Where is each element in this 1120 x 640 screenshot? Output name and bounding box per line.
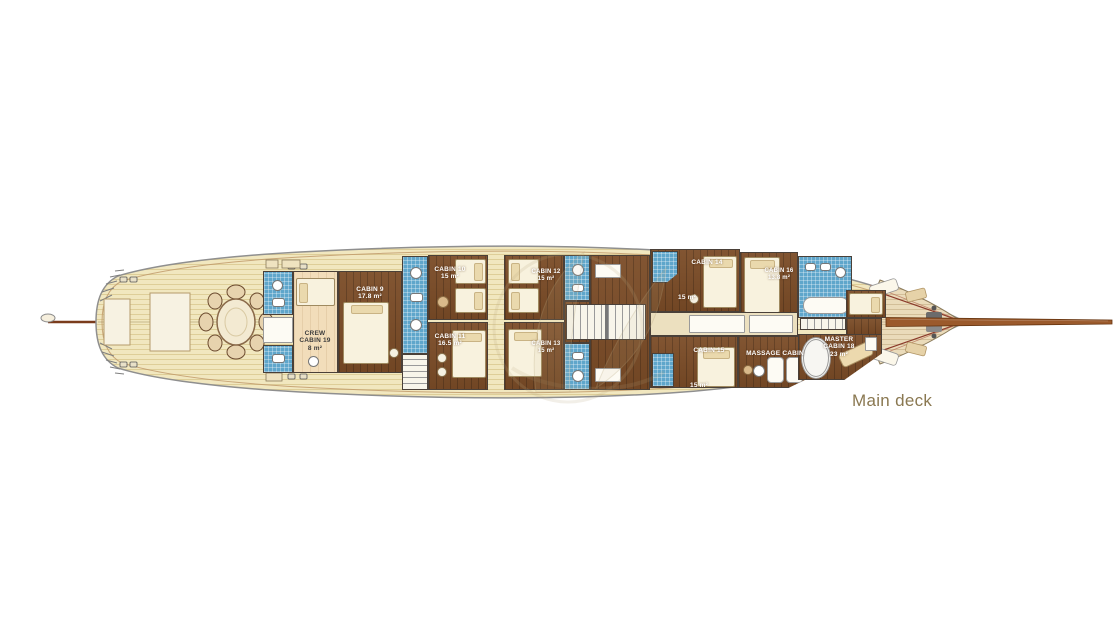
toilet bbox=[572, 370, 584, 382]
room-area: 17.8 m² bbox=[342, 293, 398, 301]
room-area: 15 m² bbox=[670, 294, 704, 302]
sink bbox=[410, 293, 423, 302]
corridor-cabinet bbox=[749, 315, 793, 333]
vanity-counter bbox=[803, 297, 849, 314]
room-label-cabin-12: CABIN 12 15 m² bbox=[528, 262, 564, 290]
room-label-cabin-13: CABIN 13 15 m² bbox=[528, 334, 564, 362]
corridor bbox=[650, 312, 798, 336]
double-bed bbox=[343, 302, 389, 364]
room-area: 8 m² bbox=[289, 345, 341, 353]
yacht-deck-plan: CREW CABIN 19 8 m² CABIN 9 17.8 m² CABIN… bbox=[0, 0, 1120, 640]
room-name: CABIN 13 bbox=[532, 341, 561, 347]
room-area: 23 m² bbox=[814, 351, 864, 359]
corridor-cabinet bbox=[689, 315, 745, 333]
room-area-cabin-14: 15 m² bbox=[670, 286, 704, 309]
side-table bbox=[743, 365, 753, 375]
cabin-16-bathroom bbox=[798, 256, 852, 318]
twin-bed bbox=[508, 288, 539, 313]
room-area: 15 m² bbox=[528, 348, 564, 355]
master-cabin-bed-area bbox=[846, 290, 886, 318]
sink bbox=[272, 298, 285, 307]
sink bbox=[820, 263, 831, 271]
room-label-cabin-10: CABIN 10 15 m² bbox=[428, 258, 472, 289]
crew-bathroom bbox=[263, 271, 293, 315]
room-label-cabin-9: CABIN 9 17.8 m² bbox=[342, 278, 398, 309]
bathroom-mid-bottom bbox=[564, 343, 590, 390]
room-label-cabin-11: CABIN 11 16.5 m² bbox=[428, 325, 472, 356]
sink bbox=[805, 263, 816, 271]
stairs-aft bbox=[402, 354, 428, 390]
main-staircase bbox=[566, 304, 646, 340]
room-name: MASSAGE CABIN bbox=[746, 350, 804, 357]
deck-skylight bbox=[150, 293, 190, 351]
stool bbox=[389, 348, 399, 358]
room-name: CABIN 16 bbox=[765, 268, 794, 274]
room-area: 15 m² bbox=[528, 276, 564, 283]
room-area: 15 m² bbox=[682, 382, 716, 390]
deck-title: Main deck bbox=[852, 391, 932, 411]
stern-flag-pole bbox=[41, 314, 98, 322]
toilet bbox=[835, 267, 846, 278]
cabin-14-bathroom bbox=[652, 251, 678, 283]
room-label-cabin-14: CABIN 14 bbox=[676, 251, 738, 266]
hull-base-drawing bbox=[0, 0, 1120, 640]
closet bbox=[595, 368, 621, 382]
room-label-cabin-15: CABIN 15 bbox=[680, 339, 738, 354]
room-name: CABIN 9 bbox=[356, 286, 383, 293]
room-name: CABIN 15 bbox=[693, 347, 724, 354]
master-bed bbox=[849, 293, 883, 315]
bathroom-mid-top bbox=[564, 255, 590, 301]
room-label-massage-cabin: MASSAGE CABIN bbox=[740, 342, 810, 357]
cabinet bbox=[865, 337, 877, 351]
toilet bbox=[410, 267, 422, 279]
massage-table-headrest bbox=[753, 365, 765, 377]
room-area: 16.5 m² bbox=[428, 340, 472, 348]
cabin-15-bathroom bbox=[652, 353, 674, 387]
twin-bed bbox=[455, 288, 486, 313]
room-label-master-cabin-18: MASTER CABIN 18 23 m² bbox=[814, 328, 864, 366]
room-area: 13.8 m² bbox=[760, 275, 798, 282]
room-name: CREW CABIN 19 bbox=[299, 330, 330, 345]
toilet bbox=[572, 264, 584, 276]
room-area: 15 m² bbox=[428, 273, 472, 281]
massage-table bbox=[767, 357, 784, 383]
room-name: CABIN 11 bbox=[435, 333, 466, 340]
toilet bbox=[272, 280, 283, 291]
sink bbox=[572, 352, 584, 360]
room-label-crew-cabin-19: CREW CABIN 19 8 m² bbox=[289, 322, 341, 360]
bathroom-column bbox=[402, 256, 428, 354]
side-table bbox=[437, 296, 449, 308]
toilet bbox=[410, 319, 422, 331]
crew-bunk-bed bbox=[296, 278, 335, 306]
stool bbox=[437, 367, 447, 377]
room-label-cabin-16: CABIN 16 13.8 m² bbox=[760, 261, 798, 289]
stern-hatch bbox=[104, 299, 130, 345]
room-name: CABIN 10 bbox=[434, 266, 465, 273]
closet bbox=[595, 264, 621, 278]
room-name: MASTER CABIN 18 bbox=[823, 336, 854, 351]
room-name: CABIN 14 bbox=[691, 259, 722, 266]
bowsprit bbox=[886, 318, 1112, 327]
sink bbox=[272, 354, 285, 363]
room-area-cabin-15: 15 m² bbox=[682, 374, 716, 397]
room-name: CABIN 12 bbox=[532, 269, 561, 275]
sink bbox=[572, 284, 584, 292]
dining-table bbox=[199, 285, 273, 359]
stair-rail bbox=[605, 305, 608, 339]
